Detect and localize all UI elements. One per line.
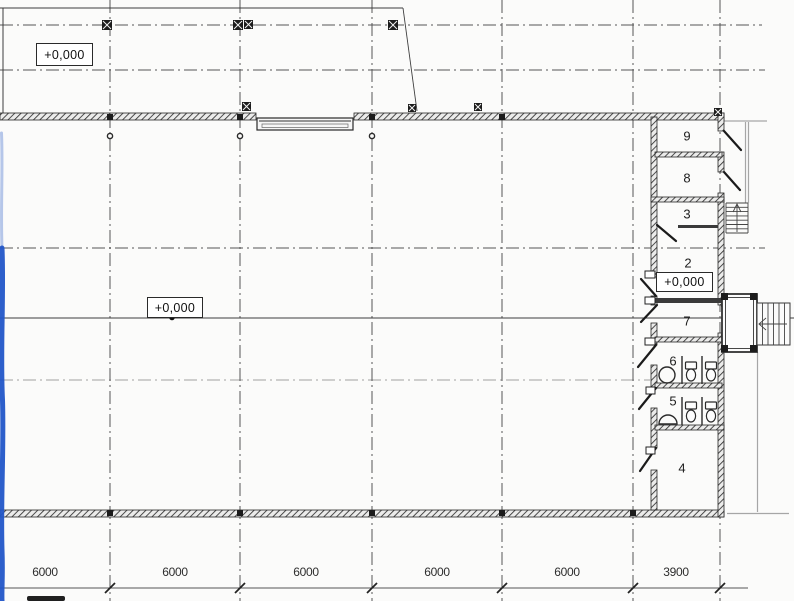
blue-annotation-stroke [2,133,3,601]
column-circle-marker [369,133,374,138]
porch-post [750,293,757,300]
axis-marker [233,20,243,30]
column-marker [107,114,113,120]
room-partition [678,225,718,228]
entrance-staircase [757,303,790,345]
room-label-5: 5 [669,395,676,408]
room-label-2: 2 [684,257,691,270]
door-swing [641,279,656,296]
elevation-mark: +0,000 [656,272,713,292]
rooms-right-wall [718,193,724,305]
door-jamb [645,271,655,278]
door-jamb [646,447,655,454]
column-circle-marker [237,133,242,138]
door-swing [657,225,676,241]
room-divider-wall [655,337,722,342]
sanitary-fixtures [659,356,717,425]
porch-post [721,293,728,300]
room-label-4: 4 [678,462,685,475]
column-marker [499,114,505,120]
axis-marker [474,103,482,111]
column-marker [369,510,375,516]
porch-post [721,345,728,352]
door-swing [641,305,657,322]
axis-marker [408,104,416,112]
column-marker [369,114,375,120]
room-divider-wall [651,197,724,202]
dimension-label: 6000 [293,566,319,578]
axis-marker [714,108,722,116]
sink-icon [659,415,677,424]
column-marker [237,510,243,516]
sink-icon [659,367,675,383]
axis-marker [244,20,253,29]
elevation-mark: +0,000 [36,43,93,66]
elevation-label: +0,000 [155,301,195,315]
room-label-7: 7 [683,315,690,328]
top-wall [354,113,724,120]
room-divider-wall [655,152,722,157]
floor-plan-canvas: +0,000 +0,000 +0,000 9 8 3 2 7 6 5 4 600… [0,0,794,601]
room-label-8: 8 [683,172,690,185]
room-label-3: 3 [683,208,690,221]
door-jamb [645,338,655,345]
door-swing [724,172,740,190]
toilet-icon [706,362,717,381]
column-marker [630,510,636,516]
leader-line [403,8,417,111]
dimension-line [0,583,748,593]
door-swing [724,131,741,150]
rooms-left-wall [651,470,657,510]
column-marker [237,114,243,120]
column-marker [499,510,505,516]
floor-plan-drawing [0,0,794,601]
column-circle-marker [107,133,112,138]
axis-markers [102,20,722,516]
axis-marker [102,20,112,30]
room-divider-wall [655,425,724,430]
axis-marker [242,102,251,111]
elevation-mark: +0,000 [147,297,203,318]
elevation-label: +0,000 [664,275,704,289]
dimension-label: 6000 [554,566,580,578]
room-label-9: 9 [683,130,690,143]
top-wall [0,113,256,120]
toilet-icon [706,402,717,422]
toilet-icon [686,402,697,422]
gate-door [257,118,353,130]
elevation-label: +0,000 [44,48,84,62]
room-divider-wall [655,383,722,388]
entrance-porch [721,293,757,352]
room-divider-wall [655,298,722,303]
dimension-label: 3900 [663,566,689,578]
door-jamb [645,297,655,304]
door-swing [638,345,656,367]
axis-marker [388,20,398,30]
toilet-icon [686,362,697,381]
dimension-label: 6000 [424,566,450,578]
dimension-label: 6000 [162,566,188,578]
walls [0,113,724,517]
column-marker [107,510,113,516]
dimension-label: 6000 [32,566,58,578]
interior-staircase [726,203,748,233]
porch-post [750,345,757,352]
room-label-6: 6 [669,355,676,368]
door-jamb [646,387,655,394]
cutoff-artifact [27,596,65,601]
